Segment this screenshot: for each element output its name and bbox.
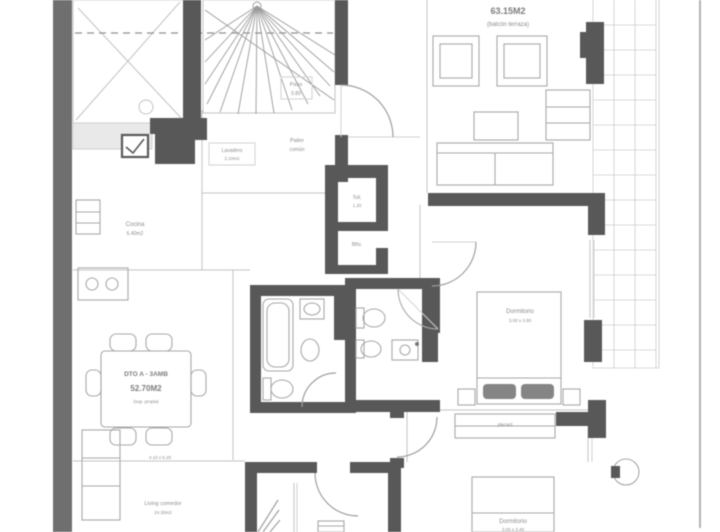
label-dining-dim: 4.10 x 5.20 [149,455,172,460]
chair [110,334,136,351]
living-furniture [433,36,590,185]
label-bano: Bño. [352,242,362,248]
label-palier-1: Palier [290,138,304,144]
sideboard [82,430,120,520]
label-living-2: 24.30m2 [154,510,172,515]
kitchen-fixtures [76,135,148,520]
chair [191,370,206,396]
bidet [301,339,319,361]
pillow [483,384,516,399]
label-paso: Paso [290,82,303,88]
label-cocina-2: 6.40m2 [127,231,144,237]
chair [86,370,101,396]
nightstand [458,389,475,405]
bedroom2-door-arc [397,417,437,457]
chair [146,334,172,351]
floor-plan-page: 63.15M2 (balcón terraza) Paso 0.80 Palie… [0,0,720,532]
kitchen-cabinet [76,200,100,234]
label-palier-2: común [289,147,304,153]
label-dorm2-2: 3.00 x 3.40 [502,527,525,532]
label-paso-dim: 0.80 [291,91,301,97]
label-toilette-2: 1.20 [353,203,362,208]
door-swings [302,85,476,516]
bidet [356,340,364,358]
entry-door-arc [341,85,393,137]
bedroom2-furniture [455,414,639,532]
bottom-room-door-arc [315,473,358,516]
side-table [546,90,590,140]
label-dorm1-1: Dormitorio [506,309,534,315]
nightstand [563,389,580,405]
label-placard: placard [498,422,513,427]
label-area-sub: (balcón terraza) [487,22,529,28]
label-dorm2-1: Dormitorio [499,519,527,525]
bathroom-door-arc [302,373,336,407]
toilet [263,378,271,400]
label-unit-3: (sup. propia) [133,399,159,404]
chair [146,428,172,445]
laundry-sink [122,135,148,157]
bottom-room-detail [258,500,344,532]
label-lavadero-1: Lavadero [222,148,243,154]
coffee-table [474,112,518,140]
walls [53,0,606,532]
label-unit-1: DTO A - 3AMB [124,371,168,378]
label-lavadero-2: 2.10m2 [224,156,240,161]
label-cocina-1: Cocina [126,222,145,228]
winding-staircase [205,2,335,114]
sink [392,340,418,360]
label-area-top: 63.15M2 [490,6,525,16]
outer-left-wall [53,0,72,532]
label-toilette-1: Toil. [353,195,362,201]
label-dorm1-2: 3.00 x 3.60 [509,318,532,323]
label-living-1: Living comedor [144,501,181,507]
pillow [521,384,554,399]
label-unit-2: 52.70M2 [130,384,162,393]
floor-plan-drawing: 63.15M2 (balcón terraza) Paso 0.80 Palie… [0,0,720,532]
